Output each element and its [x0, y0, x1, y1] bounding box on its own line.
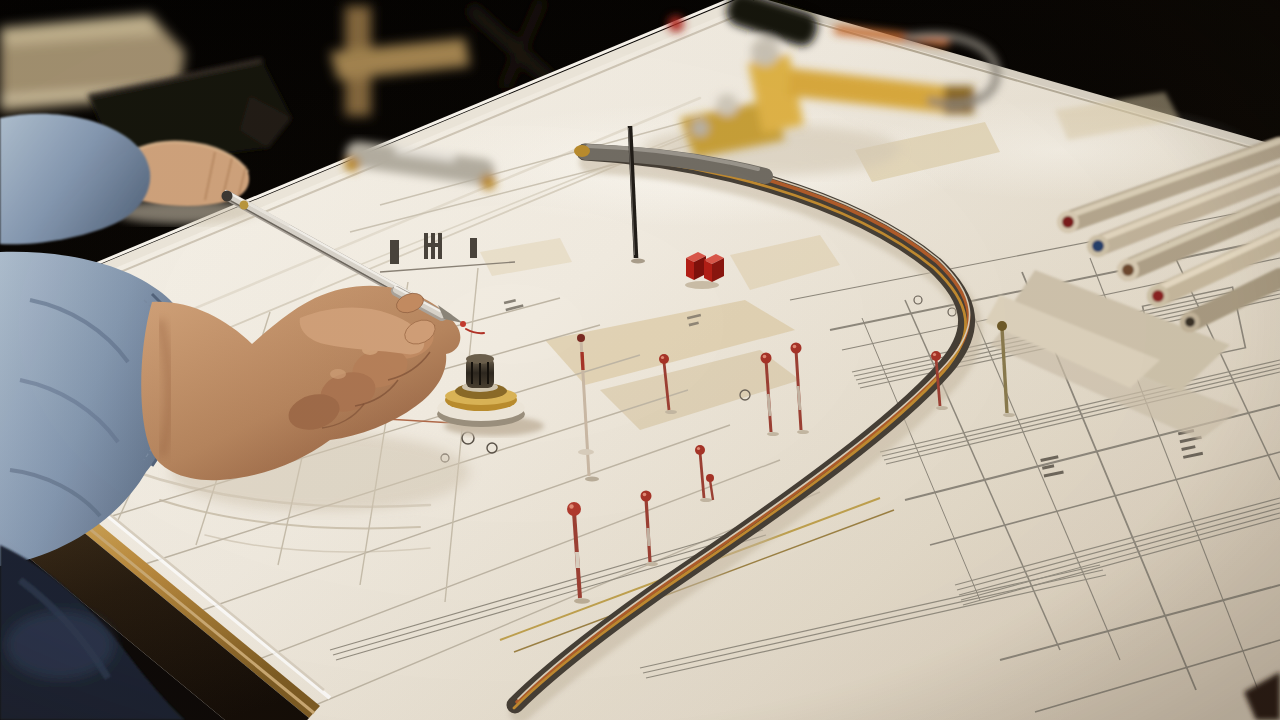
photo-architect-drafting [0, 0, 1280, 720]
vignette [0, 0, 1280, 720]
